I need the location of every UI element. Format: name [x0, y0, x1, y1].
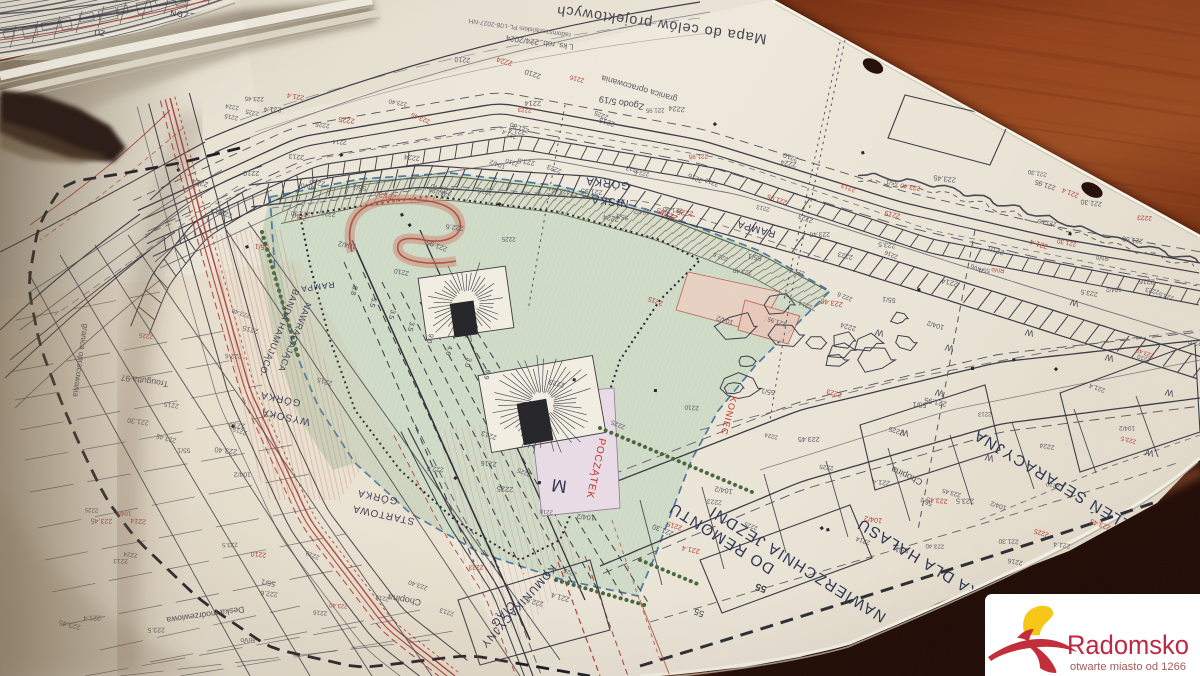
svg-text:Radomsko: Radomsko	[1067, 630, 1189, 660]
svg-text:otwarte miasto od 1266: otwarte miasto od 1266	[1070, 661, 1186, 673]
